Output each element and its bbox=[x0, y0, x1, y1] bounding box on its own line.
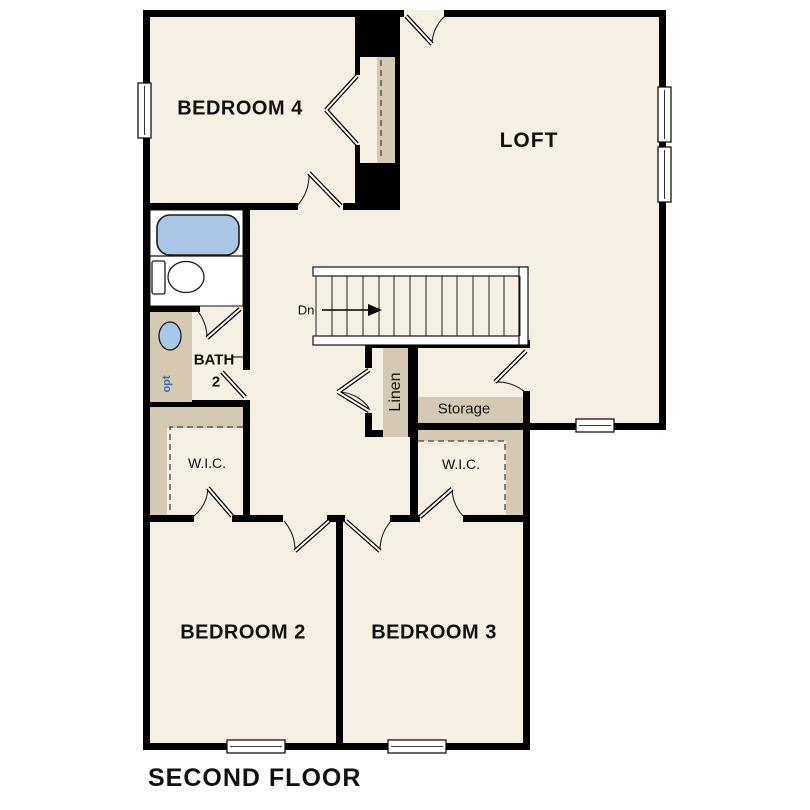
room-label-bedroom3: BEDROOM 3 bbox=[371, 622, 497, 645]
sink bbox=[159, 322, 181, 350]
room-label-bedroom2: BEDROOM 2 bbox=[180, 622, 306, 645]
optional-fixture-label: opt bbox=[161, 375, 173, 392]
bathtub bbox=[157, 215, 239, 255]
room-label-wic-right: W.I.C. bbox=[442, 456, 480, 472]
room-label-linen: Linen bbox=[387, 372, 405, 411]
room-label-bath-line2: 2 bbox=[212, 374, 220, 391]
floor-title: SECOND FLOOR bbox=[148, 764, 361, 793]
stairs-down-label: Dn bbox=[298, 303, 315, 318]
room-label-bath-line1: BATH bbox=[194, 352, 235, 369]
room-label-bedroom4: BEDROOM 4 bbox=[177, 98, 303, 121]
floor-plan-drawing bbox=[0, 0, 810, 810]
toilet bbox=[152, 261, 204, 294]
wic-left-shelf-side bbox=[150, 407, 167, 515]
wic-right-shelf-side bbox=[506, 430, 523, 515]
stair-rail-bottom bbox=[313, 336, 528, 345]
room-label-wic-left: W.I.C. bbox=[188, 455, 226, 471]
room-label-storage: Storage bbox=[438, 401, 491, 418]
room-label-loft: LOFT bbox=[500, 129, 559, 153]
bedroom-divider-wall bbox=[336, 518, 343, 743]
stair-rail-top bbox=[313, 267, 528, 276]
floor-plan: BEDROOM 4 LOFT BATH 2 W.I.C. W.I.C. Line… bbox=[0, 0, 810, 810]
closet-shelf-bedroom4 bbox=[377, 57, 395, 163]
